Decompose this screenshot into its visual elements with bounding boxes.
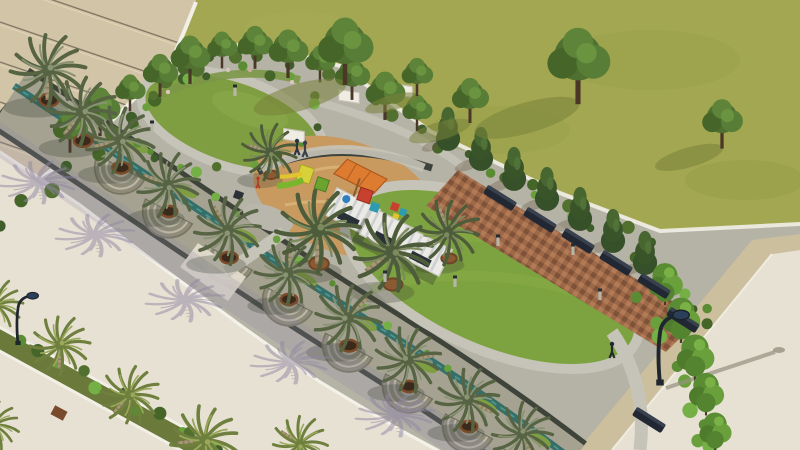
hedge-bush — [147, 149, 153, 155]
hedge-bush — [238, 61, 248, 71]
hedge-bush — [702, 304, 712, 314]
hedge-bush — [151, 154, 159, 162]
hedge-bush — [486, 168, 496, 178]
hedge-bush — [88, 381, 101, 394]
park-render-canvas — [0, 0, 800, 450]
bollard-light — [150, 121, 154, 133]
hedge-bush — [264, 70, 275, 81]
hedge-bush — [202, 72, 210, 80]
park-render — [0, 0, 800, 450]
bollard-light — [233, 85, 237, 97]
hedge-bush — [702, 318, 713, 329]
flower-cluster — [166, 90, 170, 94]
hedge-bush — [78, 365, 89, 376]
hedge-bush — [527, 179, 538, 190]
hedge-bush — [314, 123, 322, 131]
hedge-bush — [191, 167, 202, 178]
bollard-light — [571, 244, 575, 256]
hedge-bush — [273, 235, 281, 243]
flower-cluster — [248, 68, 252, 72]
bollard-light — [383, 271, 387, 283]
hedge-bush — [142, 103, 150, 111]
hedge-bush — [211, 192, 220, 201]
flower-cluster — [226, 68, 230, 72]
bollard-light — [496, 235, 500, 247]
flower-cluster — [290, 80, 294, 84]
hedge-bush — [383, 321, 392, 330]
hedge-bush — [631, 292, 642, 303]
hedge-bush — [183, 73, 194, 84]
palm-planter-ring — [461, 421, 478, 432]
bollard-light — [598, 289, 602, 301]
hedge-bush — [329, 280, 335, 286]
hedge-bush — [148, 91, 158, 101]
hedge-bush — [212, 162, 222, 172]
bollard-light — [453, 276, 457, 288]
hedge-bush — [444, 365, 452, 373]
hedge-bush — [622, 221, 635, 234]
